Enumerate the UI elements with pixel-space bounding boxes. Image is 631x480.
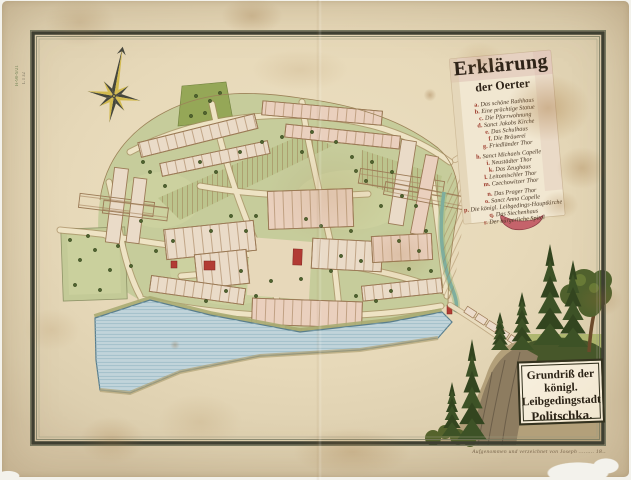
shelfmark: H-90-9/21 <box>15 38 21 86</box>
surveyor-caption: Aufgenommen und verzeichnet von Joseph …… <box>320 449 606 455</box>
map-scan: Erklärung der Oerter a. Das schöne Rathh… <box>0 0 631 480</box>
shelfmark-secondary: L I 32 <box>22 44 27 84</box>
cartouche-line: Politschka. <box>521 407 603 425</box>
cartouche-line: Grundriß der königl. <box>519 368 602 397</box>
market-square <box>247 237 312 300</box>
compass-rose-icon <box>83 42 150 127</box>
legend: Erklärung der Oerter a. Das schöne Rathh… <box>438 41 575 231</box>
title-cartouche: Grundriß der königl. Leibgedingstadt Pol… <box>517 359 605 426</box>
